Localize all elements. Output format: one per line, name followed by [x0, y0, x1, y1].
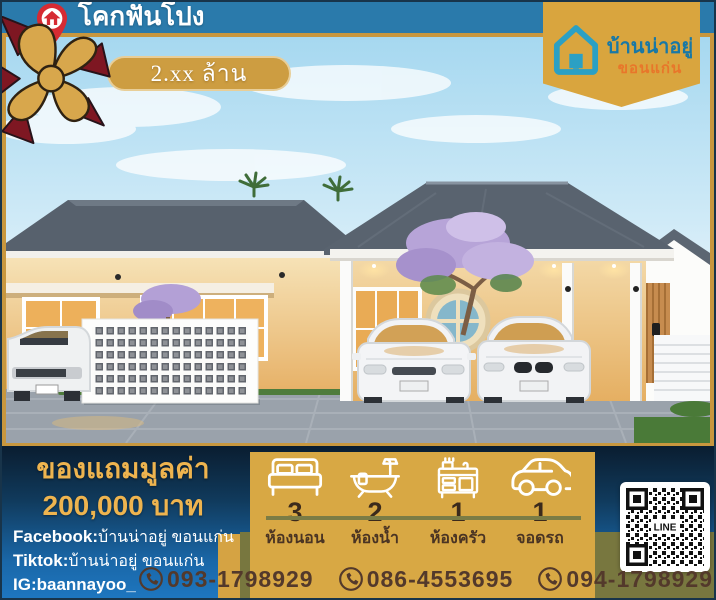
feature-bathrooms: 2: [335, 452, 415, 524]
info-band: ของแถมมูลค่า 200,000 บาท Facebook:บ้านน่…: [0, 443, 716, 600]
phone-icon: [338, 566, 364, 592]
real-estate-poster: โคกฟันโปง: [0, 0, 716, 600]
phone-icon: [138, 566, 164, 592]
promo-amount: 200,000 บาท: [0, 487, 246, 524]
bathtub-icon: [347, 456, 403, 500]
bed-icon: [265, 456, 325, 500]
facebook-label: Facebook:: [13, 527, 98, 546]
feature-divider: [266, 516, 581, 520]
bedrooms-count: 3: [255, 500, 335, 524]
kitchen-label: ห้องครัว: [418, 526, 498, 551]
promo-title: ของแถมมูลค่า: [0, 450, 246, 487]
phone-link-3[interactable]: 094-1798929: [537, 566, 713, 593]
phone-icon: [537, 566, 563, 592]
price-badge: 2.xx ล้าน: [107, 56, 291, 91]
instagram-label: IG:: [13, 575, 37, 594]
ribbon-bow-icon: [0, 16, 112, 148]
brand-city: ขอนแก่น: [603, 56, 697, 80]
promo-text: ของแถมมูลค่า 200,000 บาท: [0, 450, 246, 524]
social-line-facebook: Facebook:บ้านน่าอยู่ ขอนแก่น: [13, 525, 234, 549]
car-icon: [509, 456, 571, 500]
instagram-value: baannayoo_: [37, 575, 136, 594]
phone-link-2[interactable]: 086-4553695: [338, 566, 514, 593]
kitchen-icon: [432, 456, 484, 502]
parking-count: 1: [500, 500, 580, 524]
feature-bedrooms: 3: [255, 452, 335, 524]
feature-kitchen: 1: [418, 452, 498, 524]
facebook-value: บ้านน่าอยู่ ขอนแก่น: [98, 529, 234, 546]
phone-number: 093-1798929: [167, 566, 314, 593]
qr-line-label: LINE: [654, 523, 677, 534]
parking-label: จอดรถ: [500, 526, 580, 551]
kitchen-count: 1: [418, 500, 498, 524]
feature-parking: 1: [500, 452, 580, 524]
brand-house-icon: [553, 24, 599, 76]
phone-link-1[interactable]: 093-1798929: [138, 566, 314, 593]
tiktok-label: Tiktok:: [13, 551, 68, 570]
phone-row: 093-1798929 086-4553695 094-1798929: [138, 562, 713, 596]
bathrooms-label: ห้องน้ำ: [335, 526, 415, 551]
phone-number: 094-1798929: [566, 566, 713, 593]
bathrooms-count: 2: [335, 500, 415, 524]
qr-code[interactable]: LINE: [620, 482, 710, 572]
qr-pattern: LINE: [626, 488, 704, 566]
phone-number: 086-4553695: [367, 566, 514, 593]
bedrooms-label: ห้องนอน: [255, 526, 335, 551]
